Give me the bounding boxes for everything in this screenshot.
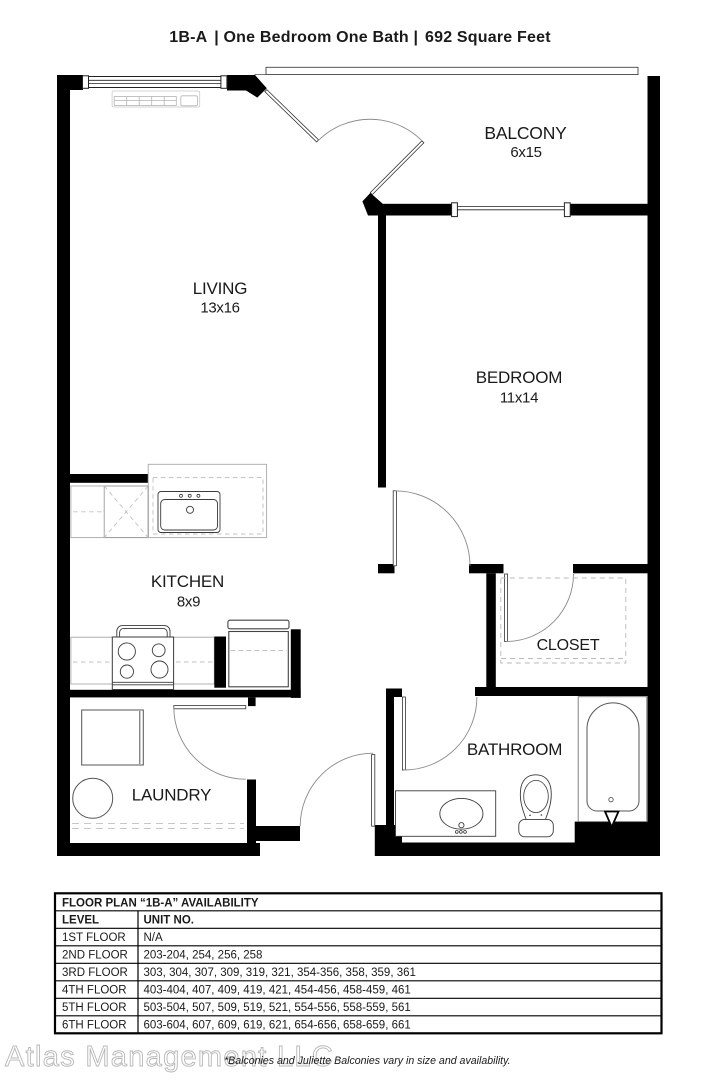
svg-text:1ST FLOOR: 1ST FLOOR — [62, 932, 126, 944]
svg-text:203-204, 254, 256, 258: 203-204, 254, 256, 258 — [144, 950, 263, 962]
svg-text:BALCONY: BALCONY — [484, 123, 567, 143]
svg-text:LAUNDRY: LAUNDRY — [132, 786, 212, 805]
svg-text:LIVING: LIVING — [193, 279, 248, 298]
svg-text:*Balconies and Juliette Balcon: *Balconies and Juliette Balconies vary i… — [224, 1055, 511, 1067]
svg-text:2ND FLOOR: 2ND FLOOR — [62, 950, 128, 962]
svg-text:403-404, 407, 409, 419, 421, 4: 403-404, 407, 409, 419, 421, 454-456, 45… — [144, 985, 411, 997]
svg-text:4TH FLOOR: 4TH FLOOR — [62, 985, 127, 997]
svg-text:3RD FLOOR: 3RD FLOOR — [62, 967, 128, 979]
svg-text:8x9: 8x9 — [177, 594, 200, 611]
svg-text:CLOSET: CLOSET — [537, 637, 600, 654]
svg-text:BEDROOM: BEDROOM — [476, 368, 562, 387]
svg-text:5TH FLOOR: 5TH FLOOR — [62, 1002, 127, 1014]
svg-text:LEVEL: LEVEL — [62, 915, 99, 927]
svg-text:11x14: 11x14 — [500, 390, 538, 407]
svg-text:KITCHEN: KITCHEN — [151, 572, 224, 591]
svg-text:303, 304, 307, 309, 319, 321,: 303, 304, 307, 309, 319, 321, 354-356, 3… — [144, 967, 416, 979]
svg-text:6x15: 6x15 — [510, 144, 541, 161]
svg-text:1B-A | One Bedroom One Bath |: 1B-A | One Bedroom One Bath | 692 Square… — [169, 29, 551, 46]
svg-text:13x16: 13x16 — [200, 300, 239, 317]
svg-text:UNIT NO.: UNIT NO. — [144, 915, 194, 927]
svg-text:6TH FLOOR: 6TH FLOOR — [62, 1020, 127, 1032]
svg-text:BATHROOM: BATHROOM — [467, 740, 562, 759]
svg-text:N/A: N/A — [144, 932, 164, 944]
svg-text:503-504, 507, 509, 519, 521, 5: 503-504, 507, 509, 519, 521, 554-556, 55… — [144, 1002, 411, 1014]
svg-text:603-604, 607, 609, 619, 621, 6: 603-604, 607, 609, 619, 621, 654-656, 65… — [144, 1020, 411, 1032]
svg-text:FLOOR PLAN “1B-A” AVAILABILITY: FLOOR PLAN “1B-A” AVAILABILITY — [62, 897, 259, 909]
